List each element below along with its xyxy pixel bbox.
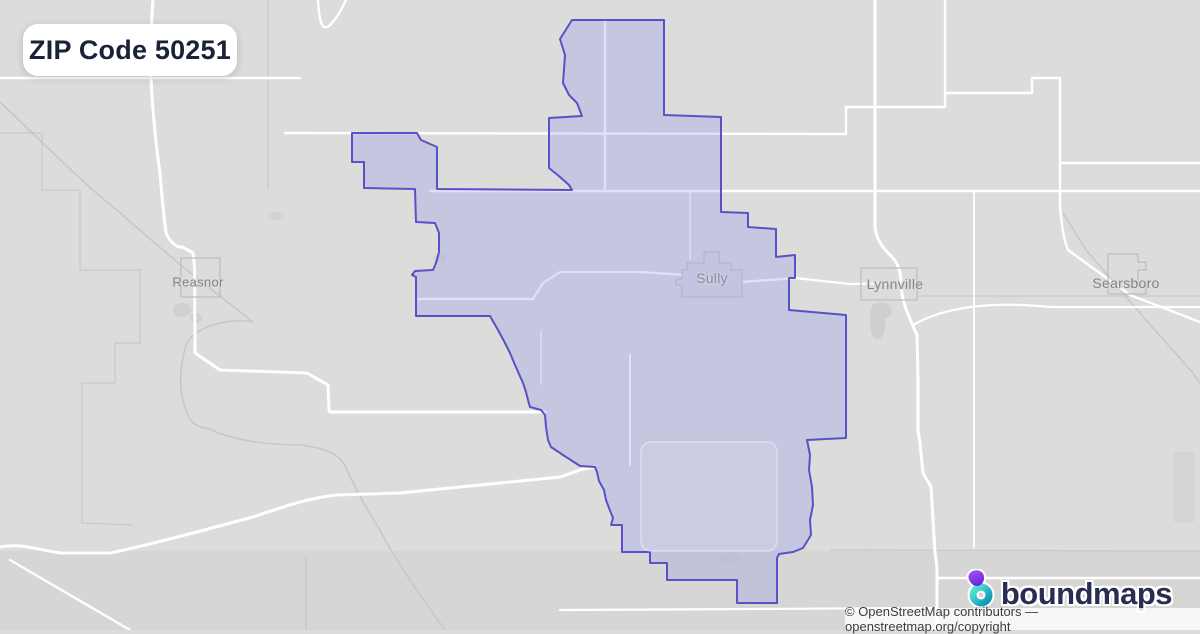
zip-code-title: ZIP Code 50251 bbox=[29, 35, 231, 66]
town-label-sully: Sully bbox=[696, 270, 728, 286]
zip-code-badge: ZIP Code 50251 bbox=[23, 24, 237, 76]
boundmaps-logo: boundmaps bbox=[966, 569, 1172, 607]
attribution-bar: © OpenStreetMap contributors — openstree… bbox=[845, 608, 1200, 630]
map-share-card: Reasnor Sully Lynnville Searsboro ZIP Co… bbox=[0, 0, 1200, 630]
town-label-lynnville: Lynnville bbox=[867, 276, 924, 292]
town-label-searsboro: Searsboro bbox=[1092, 275, 1159, 291]
town-label-reasnor: Reasnor bbox=[172, 275, 223, 290]
map-canvas bbox=[0, 0, 1200, 630]
boundmaps-logo-icon bbox=[966, 569, 998, 607]
